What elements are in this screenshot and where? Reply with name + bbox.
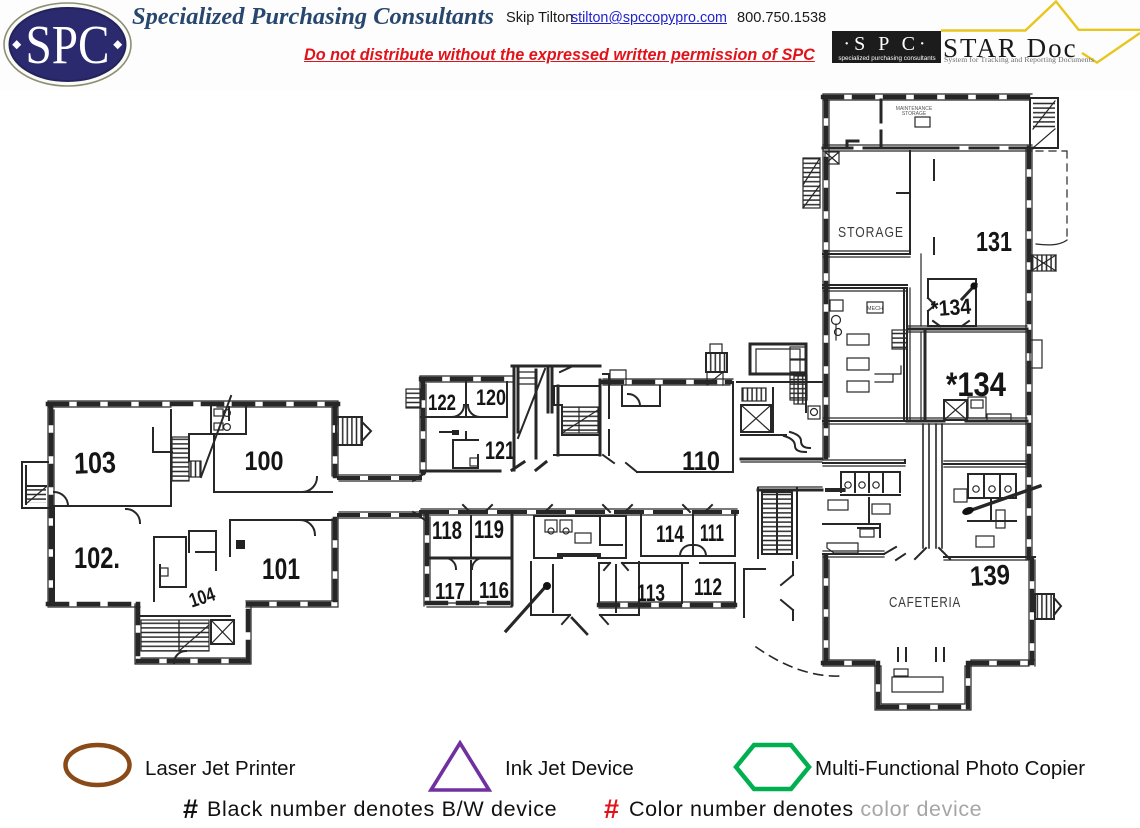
svg-text:139: 139	[969, 559, 1011, 592]
svg-text:111: 111	[700, 520, 724, 547]
svg-text:122: 122	[428, 390, 456, 415]
svg-text:CAFETERIA: CAFETERIA	[889, 594, 961, 611]
svg-text:102.: 102.	[74, 542, 120, 575]
svg-text:131: 131	[976, 226, 1012, 257]
svg-text:117: 117	[435, 578, 465, 604]
svg-text:*134: *134	[930, 294, 972, 322]
svg-text:121: 121	[485, 437, 515, 465]
svg-text:104: 104	[187, 583, 219, 612]
svg-text:118: 118	[432, 517, 462, 545]
svg-text:STORAGE: STORAGE	[902, 111, 927, 117]
svg-text:120: 120	[476, 385, 506, 410]
svg-text:113: 113	[637, 580, 665, 607]
svg-text:103: 103	[73, 446, 116, 480]
svg-text:STORAGE: STORAGE	[838, 224, 904, 241]
svg-text:*134: *134	[946, 366, 1006, 404]
svg-text:110: 110	[682, 446, 720, 476]
svg-text:101: 101	[262, 553, 300, 586]
svg-text:112: 112	[694, 574, 722, 601]
svg-text:100: 100	[245, 446, 284, 476]
svg-text:116: 116	[479, 577, 509, 603]
svg-text:MECH: MECH	[867, 306, 883, 312]
svg-text:119: 119	[474, 516, 504, 544]
svg-text:114: 114	[656, 521, 684, 548]
